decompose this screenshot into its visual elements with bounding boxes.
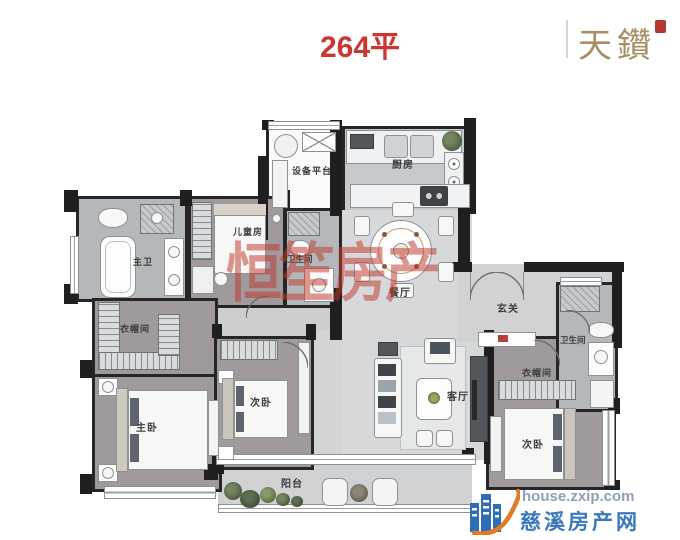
wardrobe (498, 380, 576, 400)
label-living-room: 客厅 (447, 393, 469, 403)
sofa-cushion (378, 396, 396, 408)
label-cloakroom-left: 衣帽间 (120, 325, 150, 334)
entry-door-left (470, 272, 498, 300)
basin (594, 350, 608, 364)
wall (180, 190, 192, 206)
equipment-window (268, 121, 340, 130)
dining-chair (438, 262, 454, 282)
sofa-cushion (378, 380, 396, 392)
children-desk (192, 266, 214, 294)
balcony-table (350, 484, 368, 502)
coffee-table-plant (428, 392, 440, 404)
label-master-bedroom: 主卧 (136, 424, 158, 434)
oven-knob-top (448, 158, 460, 170)
brand-divider (566, 20, 568, 58)
wall (80, 474, 92, 494)
sink-basin-left (384, 135, 408, 158)
lamp (102, 467, 114, 479)
brand-seal-icon (655, 20, 666, 33)
pouf (416, 430, 433, 447)
bathtub-inner (105, 241, 131, 293)
bath-cabinet (590, 380, 614, 408)
master-bay-window (104, 486, 216, 499)
label-bedroom-right: 次卧 (522, 441, 544, 451)
bench-decor (498, 335, 508, 342)
washer (274, 134, 298, 158)
side-table (378, 342, 398, 356)
dining-chair (438, 216, 454, 236)
wall (306, 324, 316, 340)
wall (212, 324, 222, 338)
wall (458, 206, 470, 266)
wall (524, 262, 624, 272)
site-logo-icon (468, 487, 520, 535)
site-url-watermark: house.zxip.com (522, 488, 635, 505)
pillow (130, 434, 139, 462)
bed-headboard (564, 408, 576, 480)
label-cloakroom-right: 衣帽间 (522, 369, 552, 378)
wardrobe (98, 302, 120, 354)
balcony-plant (240, 490, 260, 508)
wall (612, 262, 622, 348)
balcony-plant (260, 487, 276, 503)
tv-screen (472, 380, 477, 420)
page-title: 264平 (280, 22, 440, 66)
sofa-cushion (378, 412, 396, 424)
kitchen-plant (442, 131, 462, 151)
bath-right-door (566, 310, 590, 334)
balcony-window-wall (216, 454, 476, 465)
floorplan-page: 264平 天鑽 (0, 0, 680, 540)
armchair-cushion (430, 342, 450, 354)
bed-headboard (222, 378, 234, 440)
nightstand (218, 446, 234, 460)
wall (80, 360, 92, 378)
master-bed-headboard (116, 388, 128, 472)
dining-chair (392, 202, 414, 217)
bath-right-window (560, 277, 602, 286)
pillow (236, 386, 244, 406)
label-equipment-platform: 设备平台 (292, 167, 332, 176)
balcony-chair (372, 478, 398, 506)
equipment-unit (302, 132, 336, 152)
toilet (98, 208, 128, 228)
basin (168, 274, 180, 286)
balcony-plant (291, 496, 303, 507)
pillow (236, 412, 244, 432)
lamp (102, 381, 114, 393)
toilet (588, 322, 614, 338)
wardrobe (158, 314, 180, 356)
children-bed-headboard (214, 204, 266, 216)
wall (64, 190, 78, 212)
equipment-cabinet (272, 160, 288, 208)
balcony-plant (276, 493, 290, 506)
children-closet (192, 202, 212, 260)
site-name-watermark: 慈溪房产网 (520, 506, 640, 536)
label-foyer: 玄关 (497, 305, 519, 315)
bedroom-right-door (534, 340, 560, 366)
label-bedroom-mid: 次卧 (250, 399, 272, 409)
label-master-bath: 主卫 (133, 258, 153, 267)
kitchen-appliance (350, 134, 374, 149)
entry-door-right (496, 272, 524, 300)
sofa-cushion (378, 364, 396, 376)
pillow (553, 446, 562, 472)
wardrobe (220, 340, 278, 360)
label-balcony: 阳台 (281, 480, 303, 490)
shower (560, 286, 600, 312)
wall (452, 262, 472, 272)
shower-drain (151, 212, 163, 224)
center-watermark: 恒笙房产 (226, 222, 438, 315)
master-bath-window (70, 236, 79, 294)
pillow (553, 414, 562, 440)
basin (168, 246, 180, 258)
bedroom-mid-door (282, 342, 308, 368)
pillow (130, 398, 139, 426)
stove (420, 186, 448, 206)
pouf (436, 430, 453, 447)
brand-logo: 天鑽 (578, 18, 656, 67)
label-kitchen: 厨房 (392, 161, 414, 171)
sink-basin-right (410, 135, 434, 158)
bedroom-bench (490, 416, 502, 472)
label-bath-right: 卫生间 (560, 336, 586, 345)
bedroom-right-bay-window (602, 410, 615, 486)
hallway-mid-floor (310, 330, 346, 462)
balcony-chair (322, 478, 348, 506)
